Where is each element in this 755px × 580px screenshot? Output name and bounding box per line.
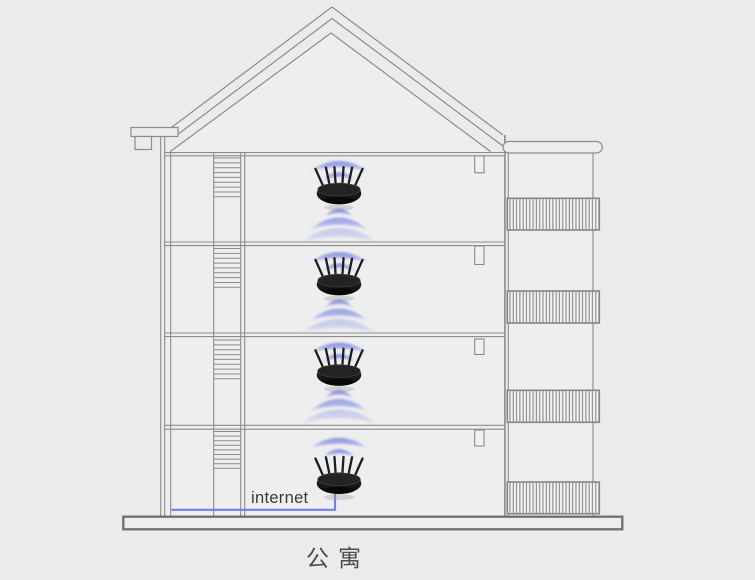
building-drawing <box>0 0 755 580</box>
apartment-wifi-diagram: internet 公寓 <box>0 0 755 580</box>
tower-cap <box>503 142 602 154</box>
wall-device-floor-4 <box>475 430 484 446</box>
shutter-floor-4 <box>507 482 599 514</box>
internet-label: internet <box>251 489 308 508</box>
building-caption: 公寓 <box>306 539 370 573</box>
wall-device-floor-3 <box>475 339 484 355</box>
base-platform <box>123 517 622 530</box>
shutter-floor-2 <box>507 291 599 323</box>
wall-device-floor-2 <box>475 246 484 265</box>
wall-device-floor-1 <box>475 156 484 173</box>
shutter-floor-3 <box>507 390 599 422</box>
shutter-floor-1 <box>507 198 599 230</box>
